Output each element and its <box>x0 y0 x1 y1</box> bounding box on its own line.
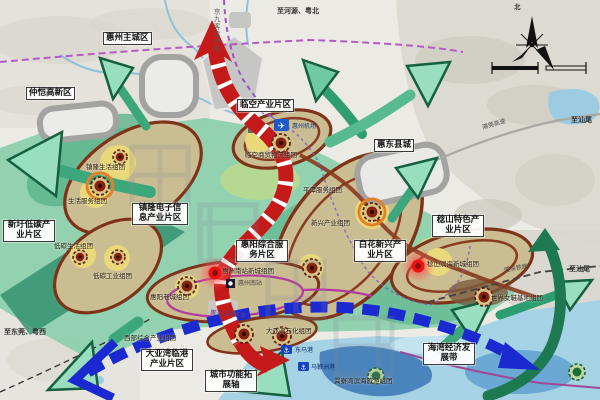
label-xunliao-tourism-cluster: 巽寮湾滨海旅游组团 <box>334 377 393 385</box>
label-huizhou-airport: 惠州机场 <box>292 123 316 131</box>
label-renshan-special: 稔山特色产业片区 <box>432 215 484 237</box>
anchor-icon-mabianzhou: ⚓ <box>298 362 309 372</box>
label-linkong-trade-cluster: 临空商贸物流组团 <box>245 151 297 159</box>
label-south-station-newtown-cluster: 惠州南站新城组团 <box>222 267 274 275</box>
label-dayawan-port: 大亚湾临港产业片区 <box>141 349 193 371</box>
label-to-shanwei-lower: 至汕尾 <box>569 265 590 274</box>
label-city-function-axis: 城市功能拓展轴 <box>205 370 257 392</box>
label-renshan-newtown-cluster: 稔山滨海新城组团 <box>427 260 479 268</box>
urban-blob-huizhou-ring <box>142 57 196 115</box>
label-huizhou-main-city: 惠州主城区 <box>103 32 152 45</box>
svg-text:✈: ✈ <box>278 122 286 132</box>
label-huiyang-oldtown-cluster: 惠阳老城组团 <box>150 293 189 301</box>
label-linkong-industry: 临空产业片区 <box>237 99 294 112</box>
label-dongma-port: 东马港 <box>295 347 313 355</box>
label-petrochemical-cluster: 大亚湾石化组团 <box>266 327 312 335</box>
label-lowcarbon-living-cluster: 低碳生活组团 <box>54 242 93 250</box>
label-zhenlong-electronics: 镇隆电子信息产业片区 <box>132 203 188 225</box>
label-to-dongguan: 至东莞、粤西 <box>4 328 46 337</box>
label-huiyang-service: 惠阳综合服务片区 <box>236 240 288 262</box>
label-zhongkai-hightech: 仲恺高新区 <box>26 87 75 100</box>
urban-blob-zhongkai <box>39 102 118 142</box>
anchor-icon-dongma: ⚓ <box>281 345 292 355</box>
label-to-shanwei-upper: 至汕尾 <box>571 116 592 125</box>
label-mabianzhou-port: 马鞭洲港 <box>311 364 335 372</box>
label-baihua-emerging: 白花新兴产业片区 <box>354 240 406 262</box>
planning-map: ✈ ⚓ ⚓ <box>0 0 600 400</box>
label-bay-economic-belt: 海湾经济发展带 <box>423 343 475 365</box>
label-jingjiu-rail: 京九客运专线 <box>212 8 220 53</box>
label-to-heyuan: 至河源、粤北 <box>277 7 319 16</box>
svg-text:⚓: ⚓ <box>300 364 306 372</box>
label-compass-north: 北 <box>514 3 521 11</box>
label-huidong-county: 惠东县城 <box>374 139 414 152</box>
label-emerging-industry-cluster: 新兴产业组团 <box>311 219 350 227</box>
train-station-icon <box>226 279 235 288</box>
label-living-service-cluster: 生活服务组团 <box>68 197 107 205</box>
label-huizhou-south-station: 惠州南站 <box>238 280 262 288</box>
svg-text:⚓: ⚓ <box>283 347 289 355</box>
label-west-comprehensive-cluster: 西部综合产业组团 <box>124 334 176 342</box>
airport-icon: ✈ <box>274 119 289 132</box>
label-lowcarbon-industry-cluster: 低碳工业组团 <box>93 272 132 280</box>
label-xinwei-lowcarbon: 新圩低碳产业片区 <box>3 220 55 242</box>
label-pingtan-service-cluster: 平潭服务组团 <box>303 186 342 194</box>
label-world-shoe-base-cluster: 世界女鞋基地组团 <box>491 294 543 302</box>
label-zhenlong-living-cluster: 镇隆生活组团 <box>86 163 125 171</box>
